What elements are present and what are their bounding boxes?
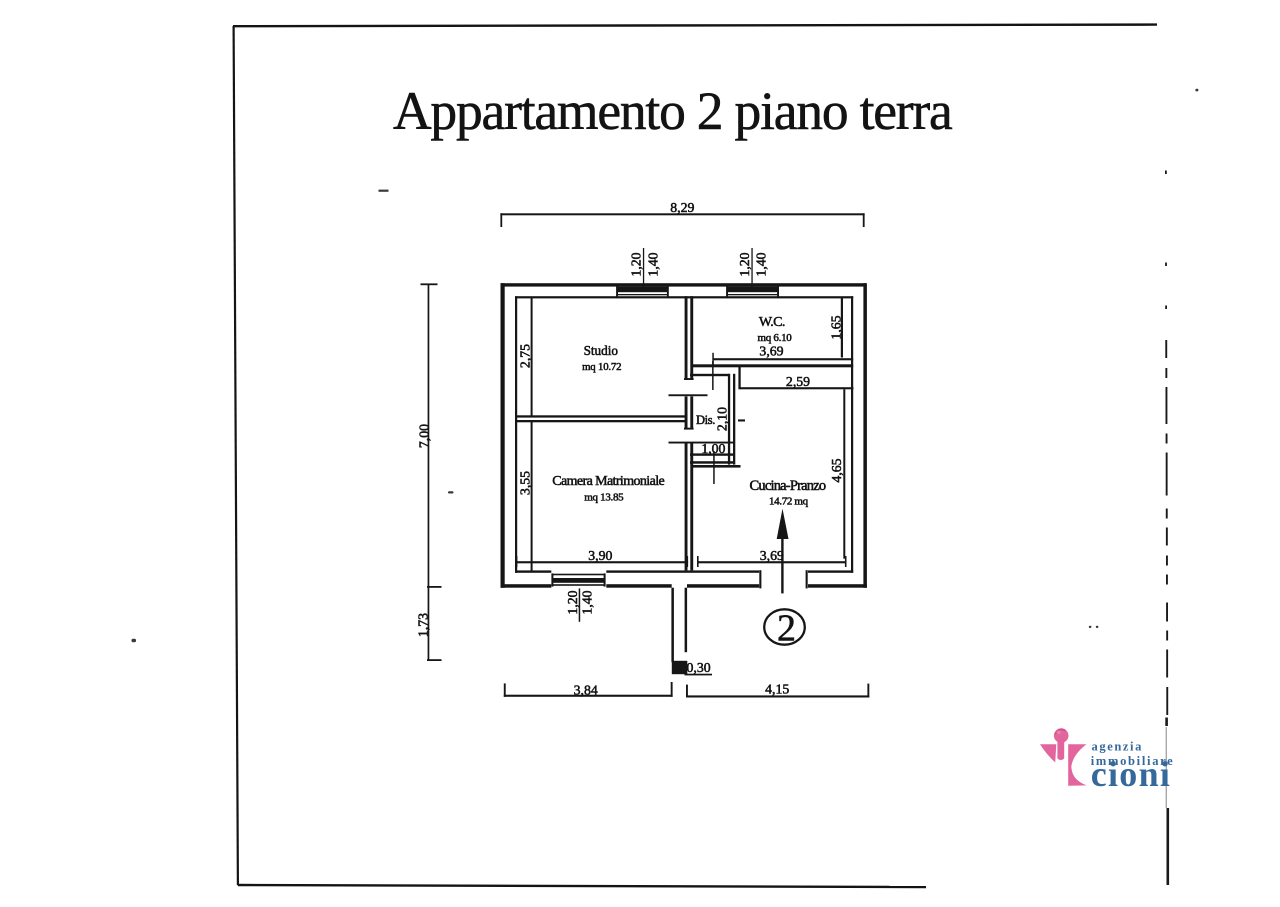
svg-text:8,29: 8,29: [670, 200, 694, 215]
svg-text:2,10: 2,10: [715, 407, 730, 431]
svg-text:Appartamento 2 piano terra: Appartamento 2 piano terra: [393, 81, 953, 141]
svg-text:1,00: 1,00: [701, 441, 725, 456]
svg-text:2,75: 2,75: [518, 344, 533, 368]
svg-text:4,65: 4,65: [829, 458, 844, 482]
svg-text:3,69: 3,69: [760, 548, 784, 563]
svg-text:0,30: 0,30: [687, 660, 711, 675]
svg-text:3,55: 3,55: [518, 471, 533, 495]
svg-text:Dis.: Dis.: [696, 413, 715, 427]
svg-text:3,90: 3,90: [588, 548, 612, 563]
svg-text:Camera Matrimoniale: Camera Matrimoniale: [552, 474, 664, 489]
svg-text:1,40: 1,40: [580, 590, 595, 614]
svg-text:mq 13.85: mq 13.85: [584, 492, 624, 504]
svg-text:cioni: cioni: [1091, 754, 1172, 794]
svg-text:Studio: Studio: [584, 343, 619, 358]
svg-text:3,84: 3,84: [574, 682, 598, 697]
svg-text:W.C.: W.C.: [759, 315, 785, 330]
svg-text:2: 2: [777, 608, 796, 650]
svg-text:1,73: 1,73: [416, 613, 431, 637]
svg-text:1,40: 1,40: [645, 252, 660, 276]
svg-text:Cucina-Pranzo: Cucina-Pranzo: [750, 478, 826, 494]
svg-text:mq 6.10: mq 6.10: [758, 332, 793, 344]
svg-text:1,65: 1,65: [829, 315, 844, 339]
svg-text:1,20: 1,20: [737, 252, 752, 276]
svg-text:4,15: 4,15: [765, 681, 789, 696]
svg-text:2,59: 2,59: [786, 374, 810, 389]
svg-text:3,69: 3,69: [759, 344, 783, 359]
svg-text:mq 10.72: mq 10.72: [582, 361, 621, 373]
svg-text:1,40: 1,40: [754, 252, 769, 276]
svg-text:agenzia: agenzia: [1092, 740, 1143, 754]
svg-text:1,20: 1,20: [628, 252, 643, 276]
svg-text:14.72 mq: 14.72 mq: [769, 496, 809, 508]
svg-text:7,00: 7,00: [417, 424, 432, 448]
svg-text:1,20: 1,20: [565, 590, 580, 614]
